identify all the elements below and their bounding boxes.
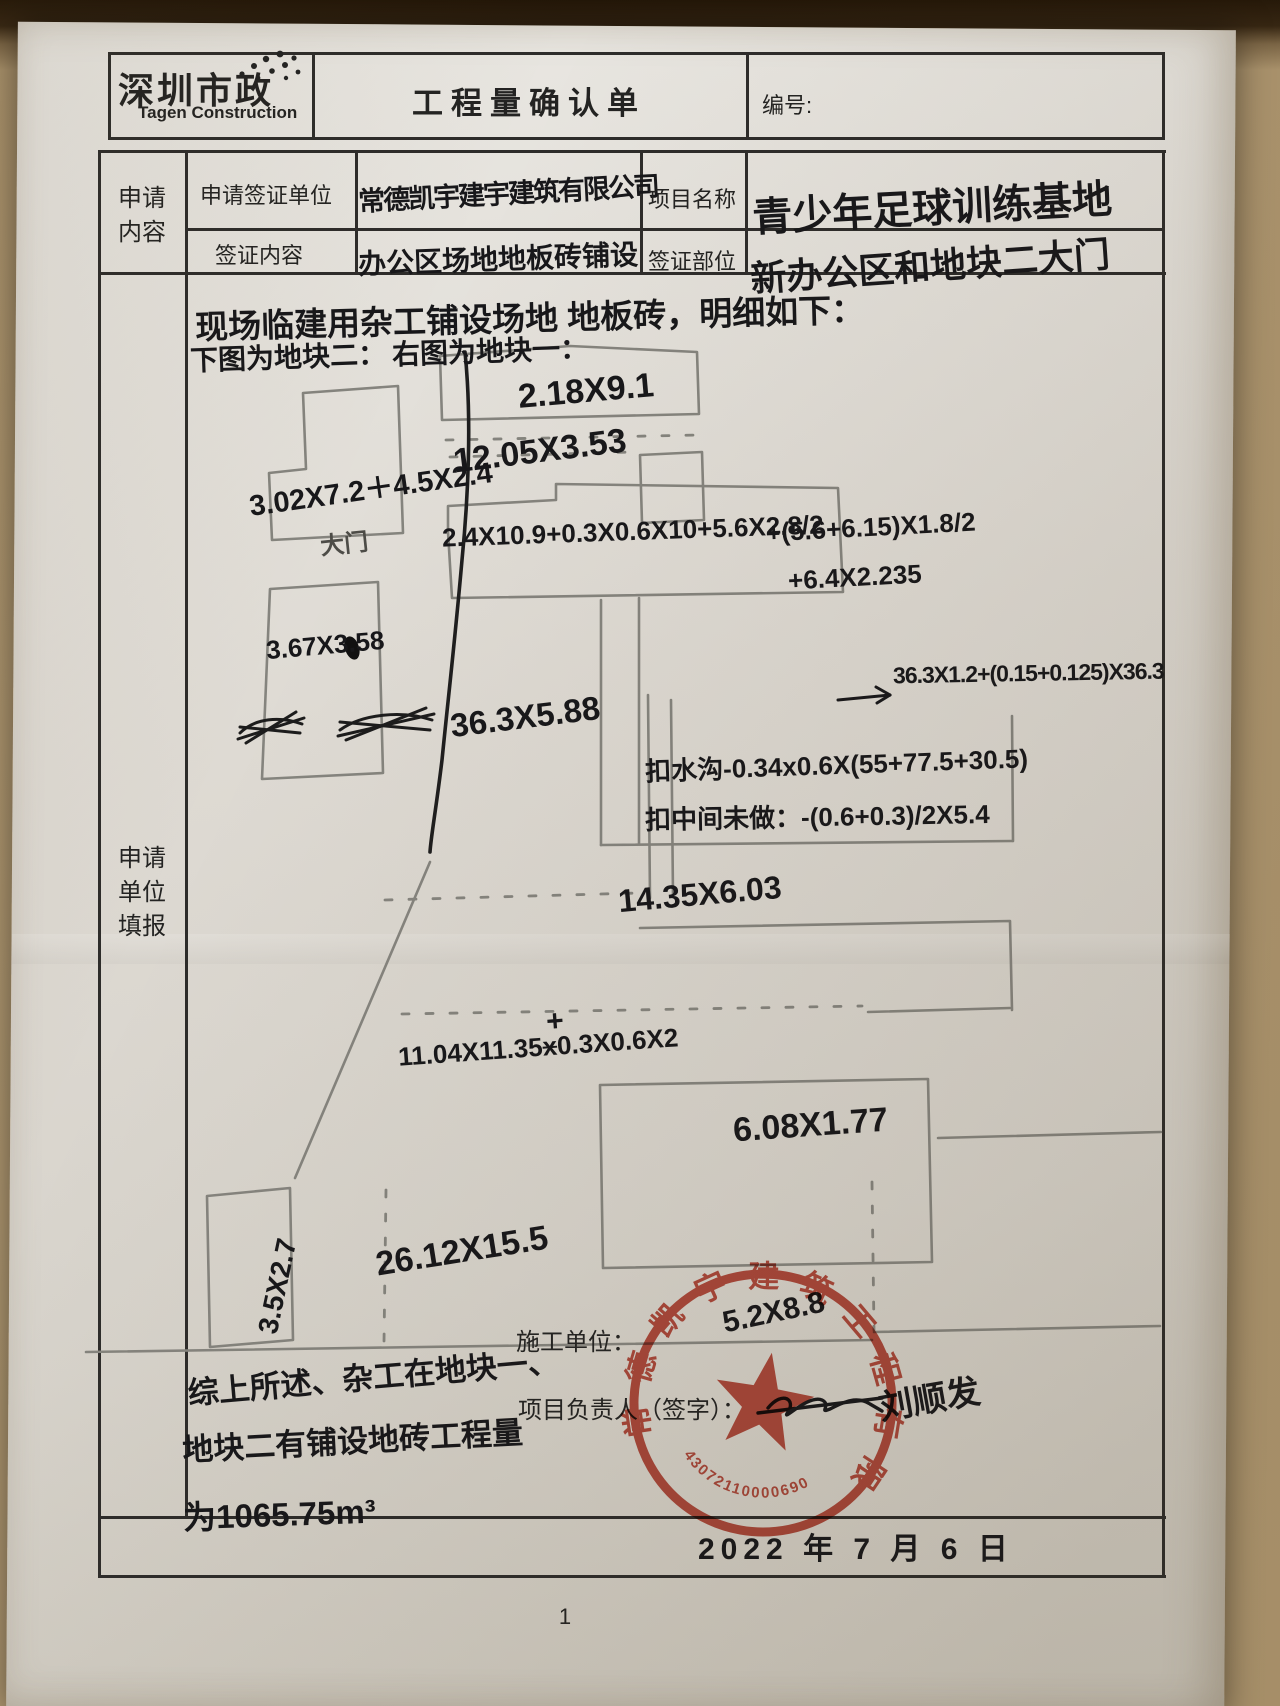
section-label-apply: 内容 — [98, 212, 186, 247]
table-line — [746, 52, 749, 140]
form-title: 工程量确认单 — [312, 78, 746, 123]
table-line — [1162, 52, 1165, 140]
logo-dots-icon — [228, 44, 308, 90]
svg-text:43072110000690: 43072110000690 — [675, 1445, 816, 1511]
scanned-form-photo: 深圳市政 Tagen Construction 工程量确认单 编号: 申请 内容… — [0, 0, 1280, 1706]
summary-total-volume: 为1065.75m³ — [182, 1485, 376, 1540]
section-label-fillin: 单位 — [98, 872, 186, 907]
section-label-fillin: 填报 — [98, 906, 186, 941]
table-line — [108, 137, 1165, 140]
stamp-star-icon — [707, 1344, 821, 1454]
page-number: 1 — [550, 1604, 580, 1630]
note-plot2-caption: 下图为地块二： — [189, 333, 386, 380]
section-label-apply: 申请 — [98, 178, 186, 213]
svg-text:常德凯宇建筑工程有限公司: 常德凯宇建筑工程有限公司 — [595, 1235, 931, 1499]
table-line — [745, 150, 748, 275]
company-logo-subtext: Tagen Construction — [138, 103, 297, 123]
field-label-visa-part: 签证部位 — [648, 244, 736, 276]
stamp-serial-number: 43072110000690 — [675, 1445, 816, 1511]
section-label-fillin: 申请 — [98, 838, 186, 873]
form-number-label: 编号: — [762, 88, 812, 120]
field-label-apply-unit: 申请签证单位 — [200, 178, 332, 210]
stamp-company-name: 常德凯宇建筑工程有限公司 — [595, 1235, 931, 1499]
company-seal-stamp: 常德凯宇建筑工程有限公司 43072110000690 — [618, 1258, 908, 1553]
table-line — [98, 150, 1166, 153]
table-line — [185, 150, 188, 1518]
deduction-note-middle: 扣中间未做：-(0.6+0.3)/2X5.4 — [645, 794, 990, 837]
paper-crease — [12, 934, 1230, 964]
table-line — [1162, 150, 1165, 1578]
field-label-visa-content: 签证内容 — [215, 238, 303, 270]
table-line — [98, 1575, 1166, 1578]
note-plot1-caption: 右图为地块一： — [391, 327, 588, 374]
correction-plus-sign: + — [545, 1004, 565, 1039]
table-line — [108, 52, 111, 140]
measurement-formula: 36.3X1.2+(0.15+0.125)X36.3 — [893, 658, 1164, 690]
gate-label: 大门 — [318, 522, 369, 562]
field-label-project-name: 项目名称 — [648, 182, 736, 214]
